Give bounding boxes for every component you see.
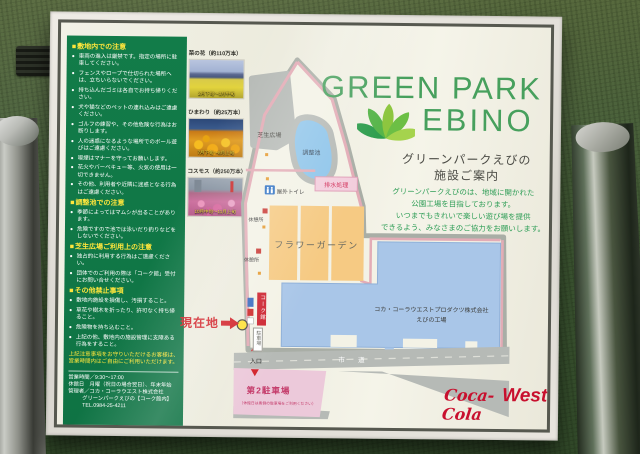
notice-item: ゴルフの練習や、その他危険な行為はお断りします。 bbox=[71, 121, 181, 137]
description-line: できるよう、みなさまのご協力をお願いします。 bbox=[369, 222, 554, 236]
coca-cola-west-logo: Coca-Cola West bbox=[443, 384, 547, 424]
rest-label: 休憩所 bbox=[248, 216, 263, 223]
notice-list: 敷地内施設を損傷し、汚損すること。 草花や樹木を折ったり、許可なく持ち帰ること。… bbox=[69, 298, 180, 350]
notice-panel: 敷地内での注意 車両の進入は厳禁です。指定の場所に駐車してください。 フェンスや… bbox=[63, 36, 187, 430]
notice-list: 独占的に利用する行為はご遠慮ください。 団体でのご利用の際は「コーク館」受付にお… bbox=[69, 253, 179, 286]
coca-cola-script-text: Coca-Cola bbox=[441, 385, 500, 424]
parking2-label: 第2駐車場 bbox=[247, 384, 291, 395]
metal-bollard-left bbox=[0, 118, 46, 454]
notice-item: 犬や猫などのペットの連れ込みはご遠慮ください。 bbox=[71, 104, 181, 120]
current-location-arrow-icon bbox=[221, 317, 239, 329]
notice-item: 危険ですので池では泳いだり釣りなどをしないでください。 bbox=[70, 226, 180, 242]
description-line: グリーンパークえびのは、地域に開かれた bbox=[369, 186, 554, 200]
notice-item: フェンスやロープで仕切られた場所へは、立ちいらないでください。 bbox=[71, 70, 181, 86]
rest-spot-icon bbox=[256, 249, 261, 254]
notice-item: 季節によってはマムシが出ることがあります。 bbox=[70, 209, 180, 225]
park-sign-photo: 敷地内での注意 車両の進入は厳禁です。指定の場所に駐車してください。 フェンスや… bbox=[0, 0, 640, 454]
lawn-label: 芝生広場 bbox=[257, 131, 281, 139]
notice-heading: その他禁止事項 bbox=[69, 288, 179, 297]
notice-list: 季節によってはマムシが出ることがあります。 危険ですので池では泳いだり釣りなどを… bbox=[70, 209, 180, 242]
notice-heading: 芝生広場ご利用上の注意 bbox=[70, 244, 180, 253]
flower-garden-label: フラワーガーデン bbox=[274, 239, 358, 251]
coke-hall-label: コーク館 bbox=[257, 293, 266, 326]
subtitle-line2: 施設ご案内 bbox=[377, 167, 554, 185]
bloom-season: 2月下旬～3月中旬 bbox=[189, 91, 243, 98]
pond-label: 調整池 bbox=[302, 149, 320, 157]
notice-item: その他、利用者や近隣に迷惑となる行為はご遠慮ください。 bbox=[70, 182, 180, 198]
west-text: West bbox=[502, 385, 547, 407]
current-location-label: 現在地 bbox=[180, 314, 219, 331]
divider bbox=[68, 370, 178, 372]
toilet-icon bbox=[265, 185, 275, 194]
subtitle-line1: グリーンパークえびの bbox=[378, 151, 555, 169]
notice-item: 団体でのご利用の際は「コーク館」受付にお問い合せください。 bbox=[69, 270, 179, 286]
notice-item: 車両の進入は厳禁です。指定の場所に駐車してください。 bbox=[72, 53, 182, 69]
notice-item: 喫煙はマナーを守ってお願いします。 bbox=[71, 155, 181, 163]
metal-bollard-right bbox=[566, 123, 640, 454]
notice-item: 敷地内施設を損傷し、汚損すること。 bbox=[69, 298, 179, 306]
drainage-label: 排水処理 bbox=[324, 181, 348, 189]
entrance-label: 入口 bbox=[250, 358, 262, 365]
sign-panel: 敷地内での注意 車両の進入は厳禁です。指定の場所に駐車してください。 フェンスや… bbox=[54, 19, 554, 432]
current-location-callout: 現在地 bbox=[180, 314, 239, 332]
tel-line: TEL.0984-25-4211 bbox=[68, 403, 178, 411]
road-label: 市道 bbox=[338, 355, 377, 364]
notice-item: 上記の他、敷地内の施設管理に支障ある行為をすること。 bbox=[69, 334, 179, 350]
notice-heading: 敷地内での注意 bbox=[72, 44, 182, 53]
notice-list: 車両の進入は厳禁です。指定の場所に駐車してください。 フェンスやロープで仕切られ… bbox=[70, 53, 181, 197]
notice-item: 草花や樹木を折ったり、許可なく持ち帰ること。 bbox=[69, 307, 179, 323]
notice-item: 花火やバーベキュー等、火気の使用は一切できません。 bbox=[70, 165, 180, 181]
rest-spot-icon bbox=[263, 208, 268, 213]
kiosk-icons bbox=[247, 298, 253, 324]
parking2-note: （休館日は奥側の駐車場をご利用ください） bbox=[239, 400, 315, 406]
sign-description: グリーンパークえびのは、地域に開かれた 公園工場を目指しております。 いつまでも… bbox=[369, 186, 554, 236]
notice-heading: 調整池での注意 bbox=[70, 199, 180, 208]
notice-item: 危険物を持ち込むこと。 bbox=[69, 324, 179, 332]
notice-item: 持ち込んだゴミは各自でお持ち帰りください。 bbox=[71, 87, 181, 103]
sign-subtitle: グリーンパークえびの 施設ご案内 bbox=[377, 151, 554, 185]
bloom-season: 7月下旬～8月上旬 bbox=[189, 150, 243, 157]
notice-item: 人の迷惑になるような場所でのボール遊びはご遠慮ください。 bbox=[71, 138, 181, 154]
facility-info: 営業時間／9:30～17:00 休館日 月曜（祝日の場合翌日）、年末年始 管理者… bbox=[68, 374, 178, 410]
sign-title-line2: EBINO bbox=[422, 102, 534, 139]
parking-label: 駐車場 bbox=[253, 327, 263, 351]
notice-footer-note: 上記注意事項をお守りいただけるお客様は、営業時間内はご自由にご利用いただけます。 bbox=[69, 352, 179, 368]
notice-item: 独占的に利用する行為はご遠慮ください。 bbox=[70, 253, 180, 269]
rest-label: 休憩所 bbox=[244, 257, 259, 264]
signboard: 敷地内での注意 車両の進入は厳禁です。指定の場所に駐車してください。 フェンスや… bbox=[46, 11, 562, 440]
bloom-season: 10月中旬～11月上旬 bbox=[188, 209, 242, 216]
